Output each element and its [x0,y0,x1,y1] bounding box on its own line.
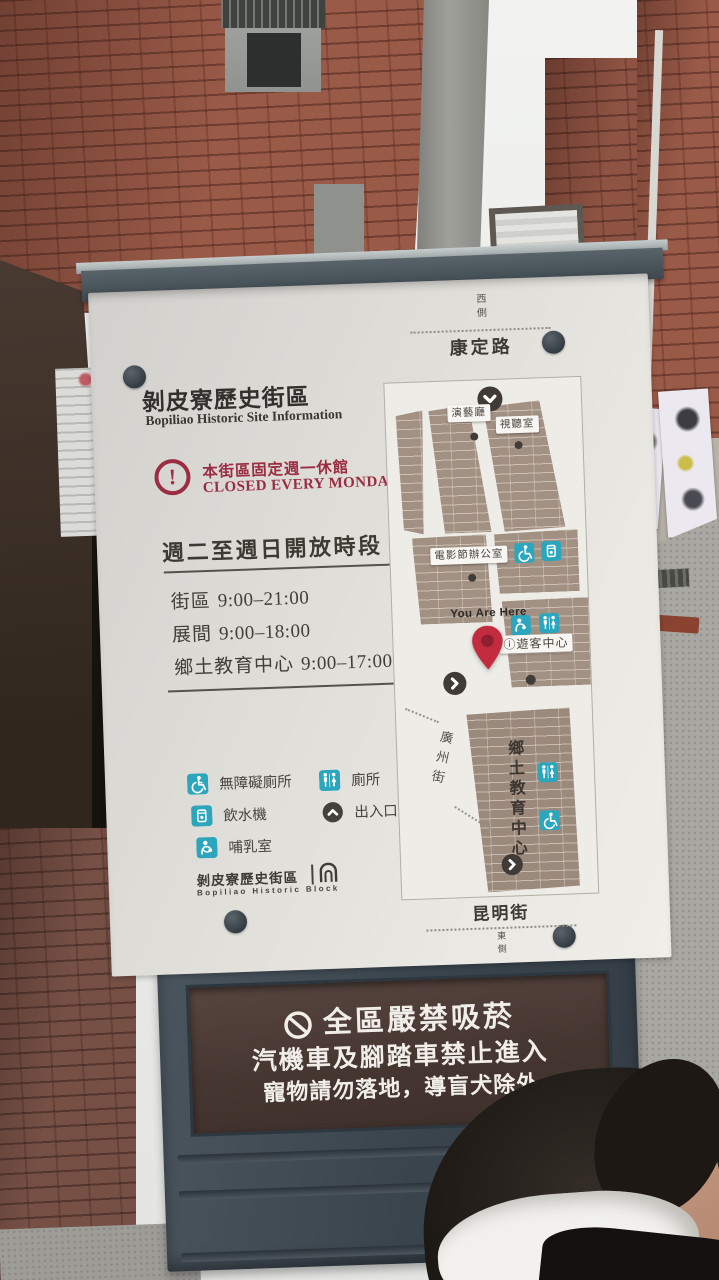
legend-label: 廁所 [351,768,381,790]
hours-row: 展間 9:00–18:00 [171,615,310,647]
legend-label: 哺乳室 [228,835,272,858]
entrance-arrow-icon [442,671,467,696]
hours-row: 街區 9:00–21:00 [170,582,309,614]
place-dot [470,432,478,440]
map-south-road: 昆明街 東側 [401,896,601,966]
legend-row: 無障礙廁所 [187,770,292,795]
panel-bolt [224,910,248,934]
tower-window [247,33,301,87]
site-map: 演藝廳 視聽室 電影節辦公室 You Are Here ⓘ遊客中心 廣州街 鄉土… [383,376,599,901]
place-tag-film-office: 電影節辦公室 [430,546,508,565]
street-photo-scene: 全區嚴禁吸菸 汽機車及腳踏車禁止進入 寵物請勿落地，導盲犬除外 剝皮寮歷史街區 … [0,0,719,1280]
west-side-label: 西側 [472,293,488,322]
accessible-toilet-icon [539,810,560,831]
street-dotted-line [405,708,439,723]
legend-row: 廁所 [319,768,381,791]
entrance-arrow-icon [501,853,524,876]
legend-label: 出入口 [354,800,398,823]
legend-row: 哺乳室 [196,835,272,859]
nursing-room-icon [196,837,218,859]
location-pin-icon [469,623,507,674]
no-smoking-line: 全區嚴禁吸菸 [282,1001,515,1042]
hours-row: 鄉土教育中心 9:00–17:00 [174,646,393,681]
accessible-toilet-icon [514,543,535,564]
info-panel: 剝皮寮歷史街區 Bopiliao Historic Site Informati… [88,273,672,976]
water-fountain-icon [541,541,562,562]
divider [168,682,400,692]
legend-row: 飲水機 [191,803,267,827]
kangding-road-label: 康定路 [382,330,581,363]
logo-divider [311,864,314,884]
hours-heading: 週二至週日開放時段 [162,528,383,568]
restroom-icon [319,770,341,792]
education-center-label: 鄉土教育中心 [501,739,529,860]
accessible-toilet-icon [187,773,209,795]
no-smoking-text: 全區嚴禁吸菸 [322,1001,515,1041]
legend-row: 出入口 [322,800,398,824]
map-north-road: 西側 康定路 [380,290,580,363]
map-building [425,404,491,534]
place-tag-visitor-center: ⓘ遊客中心 [499,633,573,654]
guangzhou-street-label: 廣州街 [425,729,456,792]
map-building [395,410,429,535]
warning-icon: ! [154,459,191,496]
legend-label: 無障礙廁所 [219,770,292,794]
no-smoking-icon [283,1009,314,1040]
east-side-label: 東側 [495,931,509,957]
restroom-icon [537,613,561,634]
logo-gate-icon [318,862,339,885]
place-tag-av-room: 視聽室 [496,415,539,433]
kunming-street-label: 昆明街 [401,896,600,928]
water-fountain-icon [191,805,213,827]
entrance-icon [322,801,344,823]
legend-label: 飲水機 [223,803,267,826]
restroom-icon [538,762,559,783]
tower-roof [221,0,325,28]
street-banner [658,388,718,537]
no-vehicles-text: 汽機車及腳踏車禁止進入 [251,1037,549,1077]
place-tag-performance-hall: 演藝廳 [447,404,490,422]
